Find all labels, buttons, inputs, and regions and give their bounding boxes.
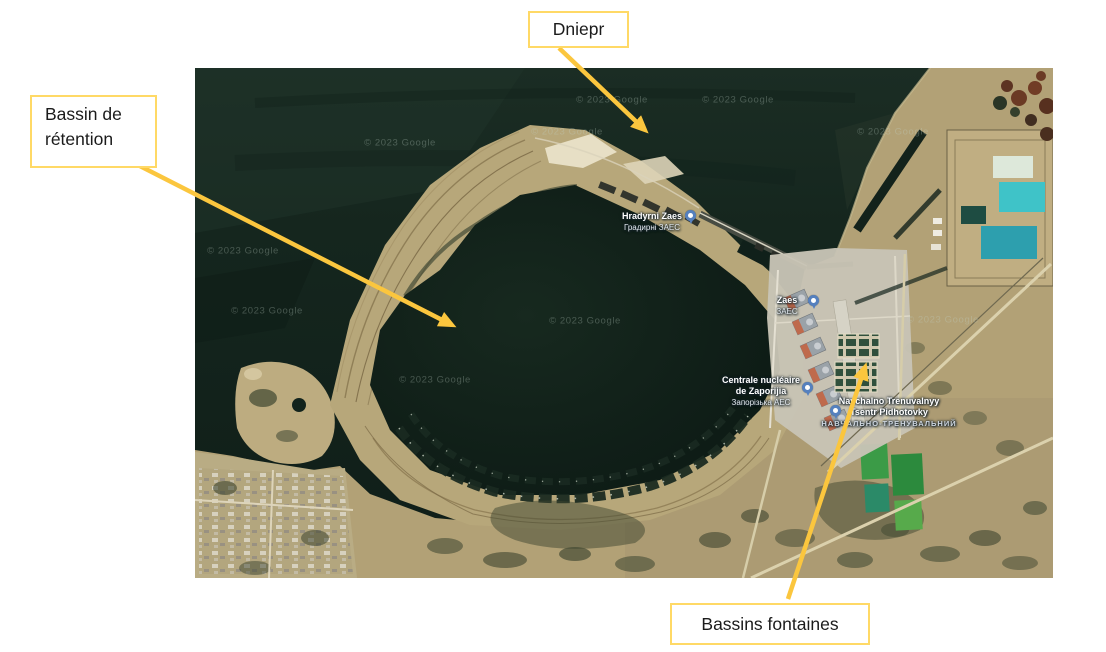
map-label-plant: Centrale nucléaire de Zaporijia Запорізь… xyxy=(722,375,800,408)
map-label-zaes-cyrillic: ЗАЕС xyxy=(776,306,797,317)
map-label-plant-line1: Centrale nucléaire xyxy=(722,375,800,385)
callout-dniepr-label: Dniepr xyxy=(553,17,605,42)
map-label-training-center-line1: Navchalno Trenuvalnyy xyxy=(839,396,940,406)
satellite-terrain xyxy=(195,68,1053,578)
map-label-training-center-line2: Tsentr Pidhotovky xyxy=(850,407,928,417)
fountain-basins xyxy=(835,334,879,392)
callout-bassins-fontaines: Bassins fontaines xyxy=(670,603,870,645)
callout-bassin-line2: rétention xyxy=(45,129,113,149)
slide-canvas: © 2023 Google © 2023 Google © 2023 Googl… xyxy=(0,0,1106,652)
callout-dniepr: Dniepr xyxy=(528,11,629,48)
map-pin-plant-icon xyxy=(802,382,813,393)
map-pin-cooling-towers-icon xyxy=(685,210,696,221)
map-label-plant-line2: de Zaporijia xyxy=(736,386,787,396)
map-label-cooling-towers-cyrillic: Градирні ЗАЕС xyxy=(622,222,682,233)
map-label-cooling-towers-latin: Hradyrni Zaes xyxy=(622,211,682,221)
callout-bassin-label: Bassin de rétention xyxy=(45,102,122,152)
map-label-zaes-latin: Zaes xyxy=(777,295,798,305)
town-grid xyxy=(195,452,357,578)
satellite-map: © 2023 Google © 2023 Google © 2023 Googl… xyxy=(195,68,1053,578)
map-label-training-center-cyrillic: НАВЧАЛЬНО-ТРЕНУВАЛЬНИЙ xyxy=(821,418,956,429)
map-label-zaes: Zaes ЗАЕС xyxy=(776,295,797,317)
callout-bassin-line1: Bassin de xyxy=(45,104,122,124)
callout-fontaines-label: Bassins fontaines xyxy=(701,612,838,637)
map-pin-zaes-icon xyxy=(808,295,819,306)
map-label-plant-cyrillic: Запорізька АЕС xyxy=(722,397,800,408)
settling-ponds xyxy=(931,130,1053,286)
callout-bassin-retention: Bassin de rétention xyxy=(30,95,157,168)
map-label-training-center: Navchalno Trenuvalnyy Tsentr Pidhotovky … xyxy=(821,396,956,429)
map-label-cooling-towers: Hradyrni Zaes Градирні ЗАЕС xyxy=(622,211,682,233)
